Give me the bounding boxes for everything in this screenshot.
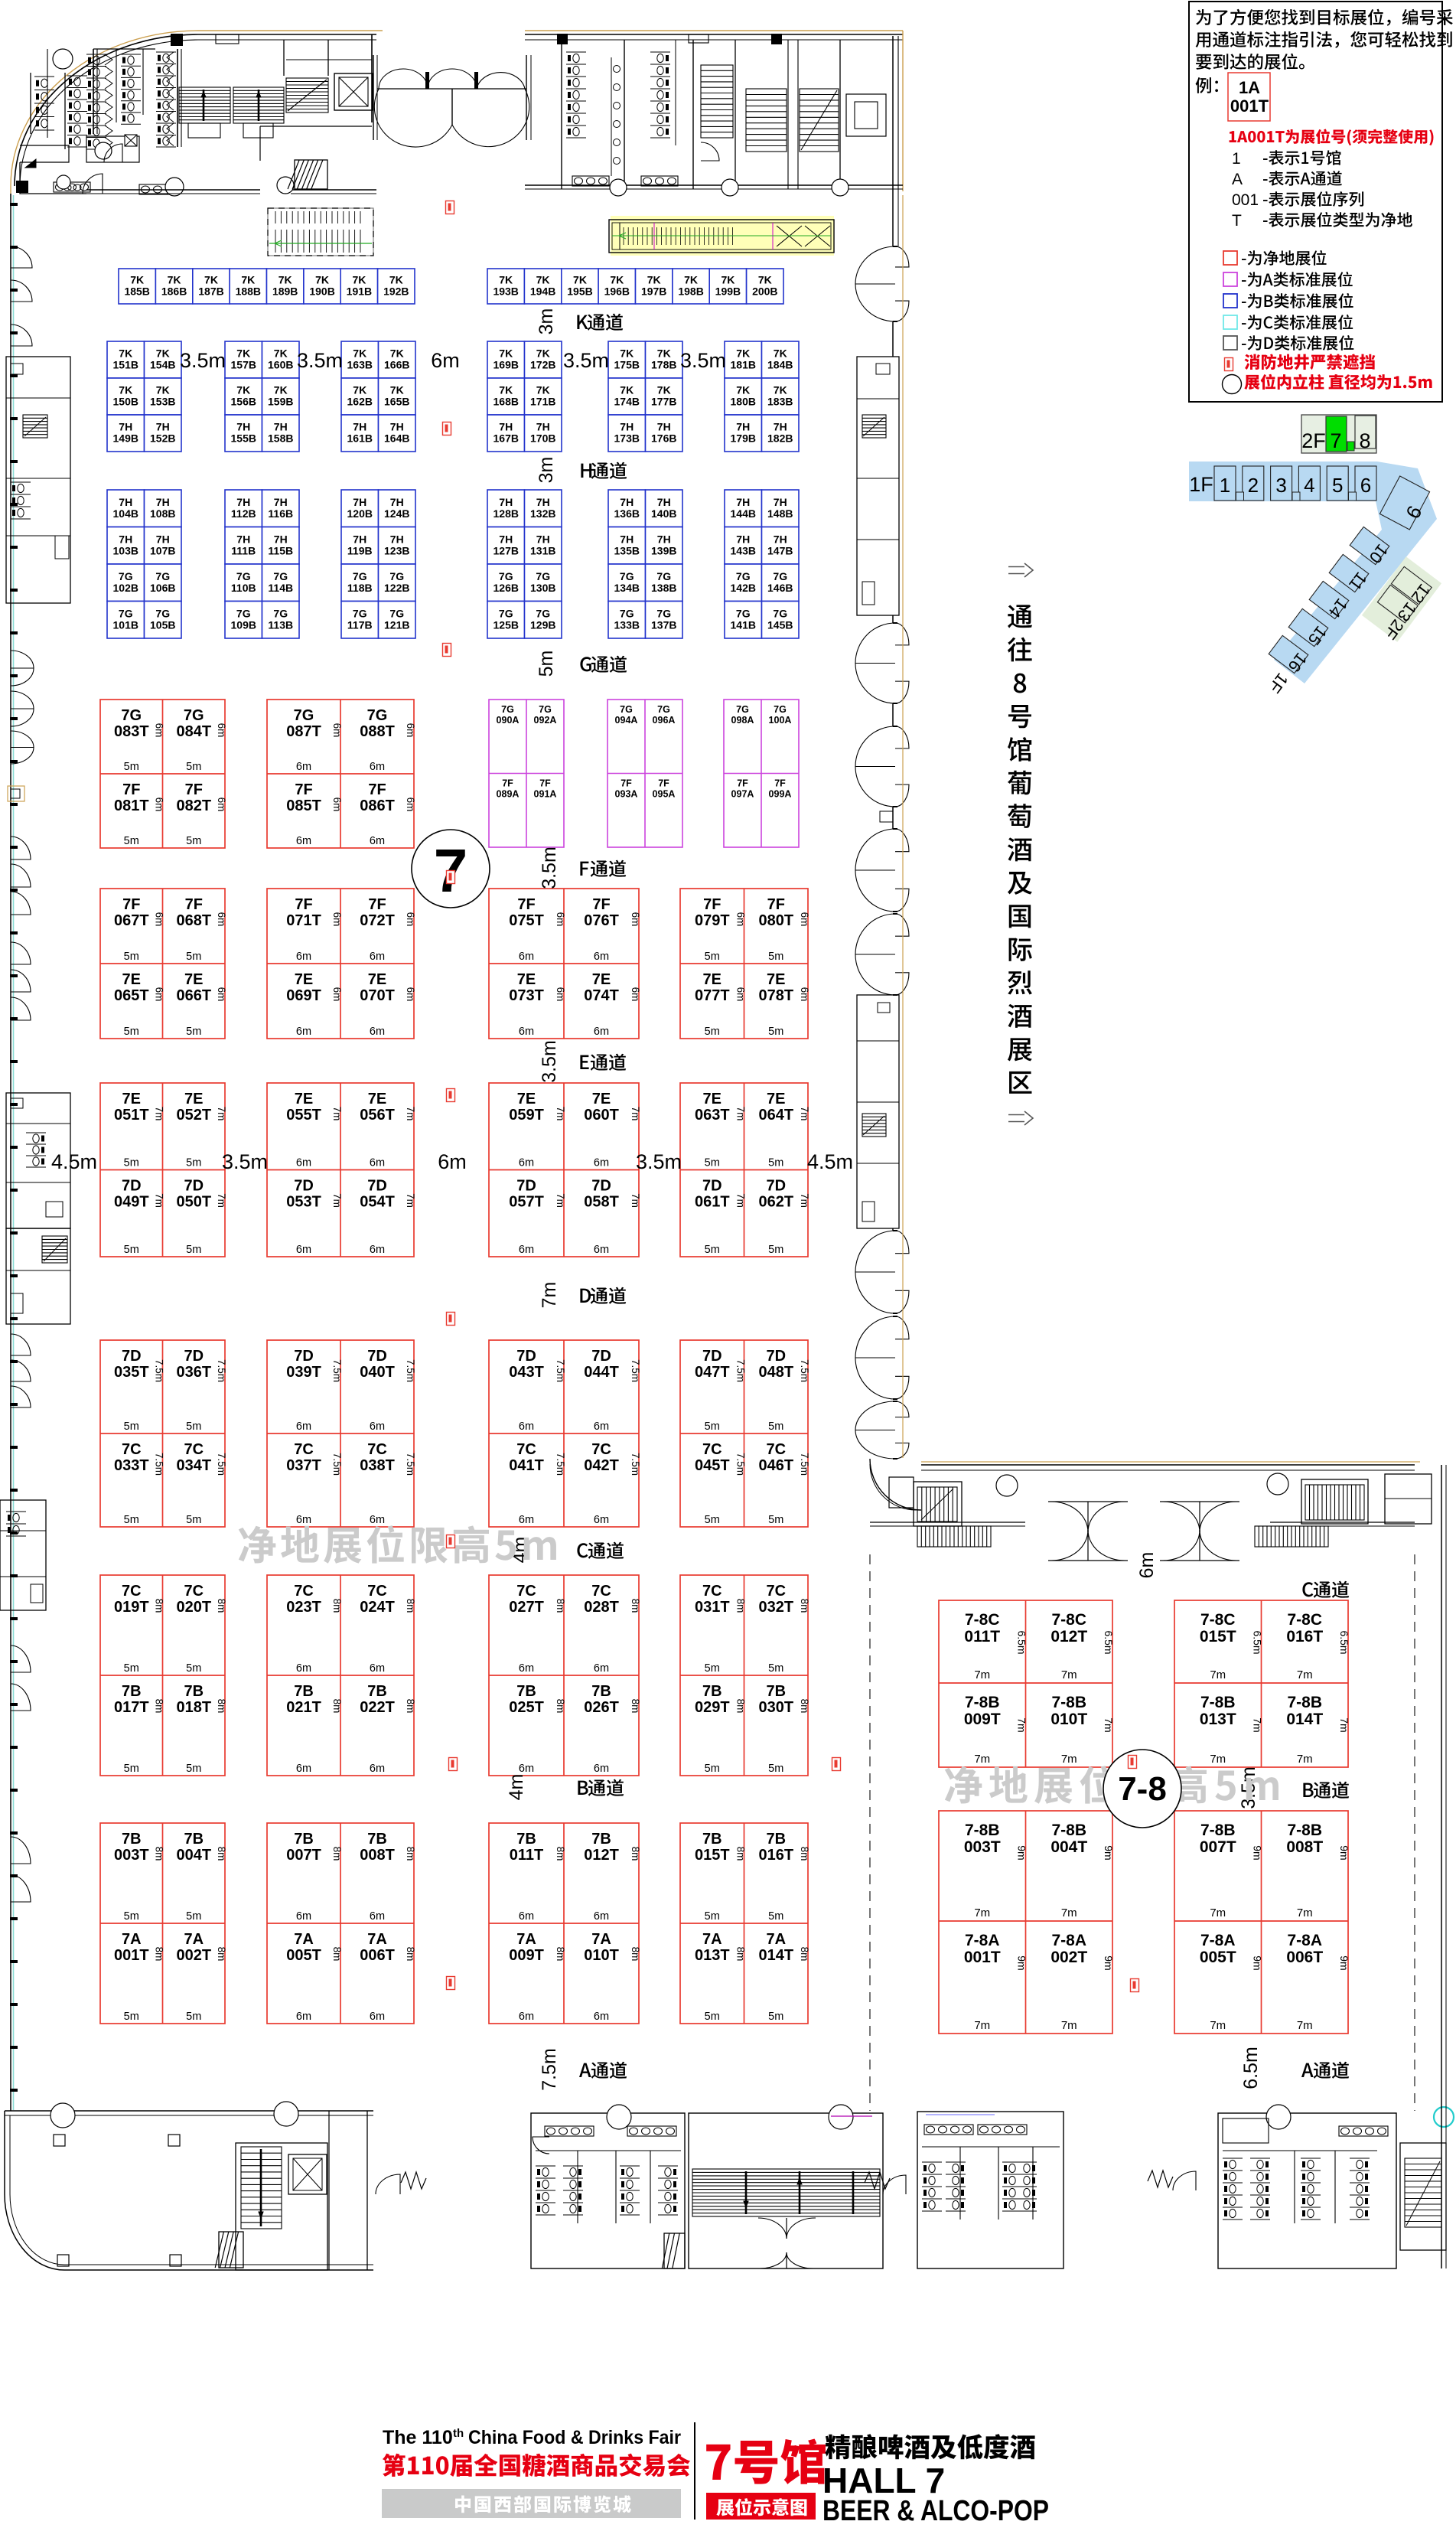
svg-text:7C: 7C [184,1583,204,1600]
svg-text:7G: 7G [119,570,133,582]
svg-text:7m: 7m [331,1193,343,1208]
svg-text:7H: 7H [736,496,750,508]
svg-text:014T: 014T [1286,1711,1323,1728]
svg-text:053T: 053T [286,1194,321,1211]
svg-text:167B: 167B [493,432,519,445]
svg-text:6m: 6m [594,1244,609,1256]
svg-text:7H: 7H [274,533,288,545]
svg-text:190B: 190B [309,285,334,298]
svg-text:5m: 5m [186,1157,201,1169]
svg-text:7.5m: 7.5m [555,1359,566,1382]
svg-text:7m: 7m [974,1906,990,1919]
svg-text:7K: 7K [353,347,366,360]
svg-text:085T: 085T [286,797,321,814]
svg-text:7A: 7A [766,1931,786,1948]
svg-text:5m: 5m [124,1763,139,1775]
svg-text:162B: 162B [347,396,373,408]
svg-text:5m: 5m [124,761,139,773]
svg-text:068T: 068T [176,912,211,929]
svg-text:093A: 093A [615,789,638,800]
svg-text:145B: 145B [767,618,793,631]
svg-text:021T: 021T [286,1699,321,1716]
svg-text:159B: 159B [268,396,293,408]
svg-text:6m: 6m [154,912,165,927]
svg-text:001: 001 [1232,191,1259,209]
svg-text:5m: 5m [705,1910,720,1923]
svg-text:6m: 6m [370,1910,385,1923]
svg-text:014T: 014T [758,1947,793,1964]
svg-text:6m: 6m [405,912,416,927]
svg-text:038T: 038T [360,1457,395,1474]
svg-text:179B: 179B [731,432,756,445]
svg-text:6m: 6m [370,761,385,773]
svg-text:7K: 7K [315,274,329,286]
svg-text:7F: 7F [368,781,386,798]
svg-text:6m: 6m [519,1662,534,1675]
svg-text:7G: 7G [155,607,170,619]
svg-text:7C: 7C [122,1583,142,1600]
svg-text:7E: 7E [122,1091,141,1107]
svg-text:7K: 7K [352,274,366,286]
svg-text:153B: 153B [150,396,175,408]
svg-text:5m: 5m [705,1763,720,1775]
svg-text:6m: 6m [370,1763,385,1775]
svg-text:8m: 8m [331,1947,343,1962]
svg-text:7D: 7D [591,1178,611,1195]
svg-text:7G: 7G [773,607,787,619]
svg-text:7G: 7G [499,607,513,619]
svg-text:001T: 001T [114,1947,149,1964]
svg-text:083T: 083T [114,723,149,740]
svg-text:106B: 106B [150,582,175,594]
svg-text:180B: 180B [731,396,756,408]
svg-text:7D: 7D [591,1348,611,1365]
svg-text:6m: 6m [216,912,227,927]
svg-text:8m: 8m [154,1847,165,1861]
svg-text:7K: 7K [620,347,634,360]
svg-text:7K: 7K [499,347,513,360]
svg-text:031T: 031T [695,1599,730,1616]
svg-text:073T: 073T [509,987,544,1004]
svg-text:197B: 197B [641,285,666,298]
svg-text:071T: 071T [286,912,321,929]
svg-text:7m: 7m [331,1107,343,1121]
svg-text:7K: 7K [684,274,698,286]
svg-text:6m: 6m [519,951,534,963]
svg-text:131B: 131B [530,544,555,556]
svg-text:6m: 6m [331,987,343,1002]
svg-text:7K: 7K [758,274,772,286]
svg-text:187B: 187B [198,285,223,298]
svg-text:7m: 7m [799,1107,810,1121]
svg-text:069T: 069T [286,987,321,1004]
svg-text:7E: 7E [592,1091,611,1107]
svg-text:7K: 7K [168,274,181,286]
svg-text:045T: 045T [695,1457,730,1474]
svg-text:7E: 7E [184,971,203,988]
svg-text:8m: 8m [799,1847,810,1861]
svg-text:7D: 7D [122,1348,142,1365]
svg-text:7H: 7H [620,496,634,508]
svg-text:7G: 7G [389,607,404,619]
svg-text:5: 5 [1332,474,1343,497]
svg-text:7G: 7G [273,607,288,619]
svg-text:7H: 7H [657,533,671,545]
svg-text:115B: 115B [268,544,293,556]
svg-text:7G: 7G [536,607,550,619]
svg-text:6m: 6m [630,912,641,927]
svg-text:188B: 188B [236,285,261,298]
svg-text:7-8B: 7-8B [1051,1694,1086,1711]
svg-text:7-8A: 7-8A [1051,1932,1086,1949]
svg-text:7G: 7G [367,707,388,724]
svg-text:7H: 7H [353,421,366,433]
svg-text:7H: 7H [536,421,550,433]
svg-text:178B: 178B [651,359,676,371]
svg-text:7G: 7G [657,704,670,715]
svg-text:005T: 005T [1200,1949,1236,1966]
svg-text:7B: 7B [184,1831,204,1848]
svg-text:6m: 6m [519,2011,534,2023]
svg-text:7G: 7G [236,570,251,582]
svg-text:7m: 7m [974,2019,990,2032]
svg-text:5m: 5m [186,1910,201,1923]
svg-text:7G: 7G [736,570,751,582]
svg-text:7-8A: 7-8A [965,1932,1000,1949]
svg-text:BEER & ALCO-POP: BEER & ALCO-POP [822,2495,1049,2527]
svg-text:6m: 6m [594,951,609,963]
svg-text:6m: 6m [594,1514,609,1526]
svg-text:7D: 7D [766,1178,786,1195]
svg-text:2: 2 [1248,474,1259,497]
svg-text:6: 6 [1360,474,1371,497]
svg-text:7G: 7G [536,570,550,582]
svg-text:8m: 8m [331,1599,343,1613]
svg-text:7G: 7G [119,607,133,619]
svg-text:7m: 7m [1016,1717,1028,1732]
svg-text:016T: 016T [1286,1628,1323,1645]
svg-text:7K: 7K [236,347,250,360]
svg-text:7D: 7D [516,1178,536,1195]
svg-text:047T: 047T [695,1364,730,1381]
svg-text:7E: 7E [368,971,386,988]
svg-text:7E: 7E [368,1091,386,1107]
svg-text:7.5m: 7.5m [405,1453,416,1476]
svg-text:6m: 6m [431,349,460,372]
svg-text:7K: 7K [274,347,288,360]
svg-text:5m: 5m [186,1662,201,1675]
svg-text:9m: 9m [1252,1955,1264,1970]
svg-text:3.5m: 3.5m [297,349,343,372]
svg-text:7A: 7A [591,1931,611,1948]
svg-text:7B: 7B [367,1683,387,1700]
svg-text:7m: 7m [974,1753,990,1766]
svg-text:7K: 7K [721,274,735,286]
svg-text:7H: 7H [274,496,288,508]
svg-text:149B: 149B [113,432,138,445]
svg-text:7A: 7A [184,1931,204,1948]
svg-text:3.5m: 3.5m [180,349,226,372]
svg-text:7G: 7G [736,607,751,619]
svg-text:8m: 8m [216,1947,227,1962]
svg-text:084T: 084T [176,723,211,740]
svg-text:7D: 7D [367,1348,387,1365]
svg-text:6.5m: 6.5m [1240,2047,1262,2089]
svg-text:7K: 7K [774,347,787,360]
svg-text:011T: 011T [510,1847,543,1864]
svg-text:7C: 7C [184,1441,204,1458]
svg-text:5m: 5m [768,1910,783,1923]
svg-text:5m: 5m [705,2011,720,2023]
svg-text:092A: 092A [534,715,557,726]
svg-text:7m: 7m [1338,1717,1350,1732]
svg-text:7-8B: 7-8B [1200,1694,1236,1711]
svg-text:5m: 5m [705,1026,720,1038]
svg-text:7-8: 7-8 [1118,1770,1167,1808]
svg-text:072T: 072T [360,912,395,929]
svg-text:7C: 7C [294,1441,314,1458]
svg-text:7m: 7m [974,1668,990,1681]
svg-text:7m: 7m [1297,2019,1313,2032]
svg-text:6m: 6m [296,835,311,847]
svg-text:7E: 7E [767,1091,785,1107]
svg-text:9m: 9m [1103,1955,1115,1970]
svg-text:7-8B: 7-8B [1200,1822,1236,1839]
svg-text:7F: 7F [295,781,312,798]
svg-text:7F: 7F [539,778,551,789]
svg-text:6m: 6m [154,723,165,738]
svg-text:7H: 7H [736,421,750,433]
svg-text:7H: 7H [156,496,170,508]
svg-text:5m: 5m [186,1514,201,1526]
svg-text:7: 7 [1330,429,1341,452]
svg-text:6m: 6m [331,797,343,812]
svg-text:7A: 7A [294,1931,314,1948]
svg-text:6m: 6m [519,1514,534,1526]
svg-text:137B: 137B [651,618,676,631]
svg-text:130B: 130B [530,582,555,594]
svg-text:163B: 163B [347,359,373,371]
svg-text:133B: 133B [614,618,640,631]
svg-text:7K: 7K [657,384,671,396]
svg-text:027T: 027T [509,1599,544,1616]
svg-text:7C: 7C [516,1441,536,1458]
svg-text:164B: 164B [384,432,409,445]
svg-text:7G: 7G [773,570,787,582]
svg-text:043T: 043T [509,1364,544,1381]
svg-text:150B: 150B [113,396,138,408]
svg-text:8m: 8m [216,1699,227,1714]
svg-text:7D: 7D [766,1348,786,1365]
svg-text:7K: 7K [647,274,661,286]
svg-text:6m: 6m [799,987,810,1002]
svg-text:5m: 5m [705,1420,720,1433]
svg-text:7.5m: 7.5m [555,1453,566,1476]
svg-text:065T: 065T [114,987,149,1004]
svg-text:6m: 6m [799,912,810,927]
svg-text:7C: 7C [702,1583,722,1600]
svg-text:9m: 9m [1252,1845,1264,1860]
svg-text:8m: 8m [405,1699,416,1714]
svg-text:032T: 032T [758,1599,793,1616]
svg-text:7F: 7F [767,896,785,913]
svg-text:7E: 7E [767,971,785,988]
svg-text:8m: 8m [799,1599,810,1613]
svg-text:109B: 109B [231,618,256,631]
svg-text:100A: 100A [769,715,792,726]
svg-text:3: 3 [1275,474,1286,497]
svg-text:7m: 7m [799,1193,810,1208]
svg-text:7H: 7H [156,533,170,545]
svg-text:6m: 6m [296,1910,311,1923]
svg-text:5m: 5m [124,1910,139,1923]
svg-text:7m: 7m [1210,2019,1226,2032]
svg-text:7E: 7E [295,971,313,988]
svg-text:020T: 020T [176,1599,211,1616]
svg-text:7F: 7F [774,778,786,789]
svg-text:7B: 7B [766,1831,786,1848]
svg-text:5m: 5m [124,1157,139,1169]
svg-text:T: T [1232,212,1242,230]
svg-text:037T: 037T [286,1457,321,1474]
svg-text:7K: 7K [536,347,550,360]
svg-text:6m: 6m [594,1662,609,1675]
svg-text:7C: 7C [766,1583,786,1600]
svg-text:5m: 5m [705,951,720,963]
svg-text:2F: 2F [1301,429,1326,452]
svg-text:120B: 120B [347,507,373,520]
svg-text:6m: 6m [296,1026,311,1038]
svg-text:067T: 067T [114,912,149,929]
svg-text:7K: 7K [278,274,292,286]
svg-text:8m: 8m [799,1699,810,1714]
svg-text:005T: 005T [286,1947,321,1964]
svg-text:7m: 7m [1297,1906,1313,1919]
svg-text:7G: 7G [501,704,514,715]
svg-text:001T: 001T [1230,96,1269,116]
svg-text:006T: 006T [360,1947,395,1964]
svg-text:174B: 174B [614,396,640,408]
svg-text:6m: 6m [370,1662,385,1675]
svg-text:6m: 6m [438,1150,467,1173]
svg-text:7G: 7G [121,707,142,724]
svg-text:025T: 025T [509,1699,544,1716]
svg-text:016T: 016T [758,1847,793,1864]
svg-text:158B: 158B [268,432,293,445]
svg-text:7D: 7D [184,1348,204,1365]
svg-text:112B: 112B [231,507,256,520]
svg-text:003T: 003T [964,1838,1001,1856]
svg-text:126B: 126B [493,582,519,594]
svg-text:5m: 5m [124,835,139,847]
svg-text:7E: 7E [295,1091,313,1107]
svg-text:The 110: The 110 [383,2427,453,2448]
svg-text:195B: 195B [567,285,592,298]
svg-text:7C: 7C [294,1583,314,1600]
svg-text:5m: 5m [124,1026,139,1038]
svg-text:8m: 8m [735,1599,747,1613]
svg-text:3.5m: 3.5m [222,1150,268,1173]
svg-text:7G: 7G [736,704,749,715]
svg-text:7-8A: 7-8A [1287,1932,1322,1949]
svg-text:3.5m: 3.5m [680,349,726,372]
svg-text:7F: 7F [703,896,721,913]
svg-text:006T: 006T [1286,1949,1323,1966]
svg-text:7B: 7B [702,1683,722,1700]
svg-text:7m: 7m [216,1107,227,1121]
svg-text:165B: 165B [384,396,409,408]
svg-text:147B: 147B [767,544,793,556]
svg-text:7K: 7K [536,384,550,396]
svg-text:7K: 7K [390,347,404,360]
svg-text:5m: 5m [186,1244,201,1256]
svg-text:8m: 8m [331,1699,343,1714]
svg-text:170B: 170B [530,432,555,445]
svg-text:5m: 5m [768,2011,783,2023]
svg-text:070T: 070T [360,987,395,1004]
svg-text:7K: 7K [156,347,170,360]
svg-text:6m: 6m [296,1763,311,1775]
svg-text:5m: 5m [186,835,201,847]
svg-text:7F: 7F [737,778,748,789]
svg-text:7.5m: 7.5m [539,2048,560,2091]
svg-text:7H: 7H [774,533,787,545]
svg-text:6m: 6m [154,797,165,812]
svg-text:6m: 6m [519,1157,534,1169]
svg-text:8m: 8m [405,1599,416,1613]
svg-text:1: 1 [1232,150,1241,168]
svg-text:177B: 177B [651,396,676,408]
svg-text:8m: 8m [555,1947,566,1962]
svg-text:7-8C: 7-8C [1200,1611,1236,1629]
svg-text:7F: 7F [295,896,312,913]
svg-text:7C: 7C [591,1441,611,1458]
svg-text:7H: 7H [774,421,787,433]
svg-text:119B: 119B [347,544,373,556]
svg-text:3m: 3m [536,308,557,335]
svg-text:7H: 7H [774,496,787,508]
svg-text:007T: 007T [1200,1838,1236,1856]
svg-text:8m: 8m [331,1847,343,1861]
svg-text:5m: 5m [124,1514,139,1526]
svg-text:6m: 6m [216,987,227,1002]
svg-text:7B: 7B [122,1831,142,1848]
svg-text:8m: 8m [630,1947,641,1962]
svg-text:5m: 5m [705,1244,720,1256]
svg-text:138B: 138B [651,582,676,594]
svg-text:7B: 7B [516,1831,536,1848]
svg-text:6m: 6m [296,951,311,963]
svg-text:9m: 9m [1338,1845,1350,1860]
svg-text:034T: 034T [176,1457,211,1474]
svg-text:5m: 5m [124,1420,139,1433]
svg-text:7m: 7m [1210,1668,1226,1681]
svg-text:8m: 8m [405,1847,416,1861]
svg-text:7B: 7B [766,1683,786,1700]
svg-text:7F: 7F [185,781,203,798]
svg-text:7K: 7K [536,274,550,286]
svg-text:6m: 6m [370,1244,385,1256]
svg-text:105B: 105B [150,618,175,631]
svg-text:8m: 8m [154,1947,165,1962]
svg-text:064T: 064T [758,1107,793,1124]
svg-text:1: 1 [1220,474,1230,497]
svg-text:6m: 6m [370,1026,385,1038]
svg-text:7-8A: 7-8A [1200,1932,1236,1949]
svg-text:042T: 042T [584,1457,619,1474]
svg-text:7G: 7G [294,707,314,724]
svg-text:075T: 075T [509,912,544,929]
